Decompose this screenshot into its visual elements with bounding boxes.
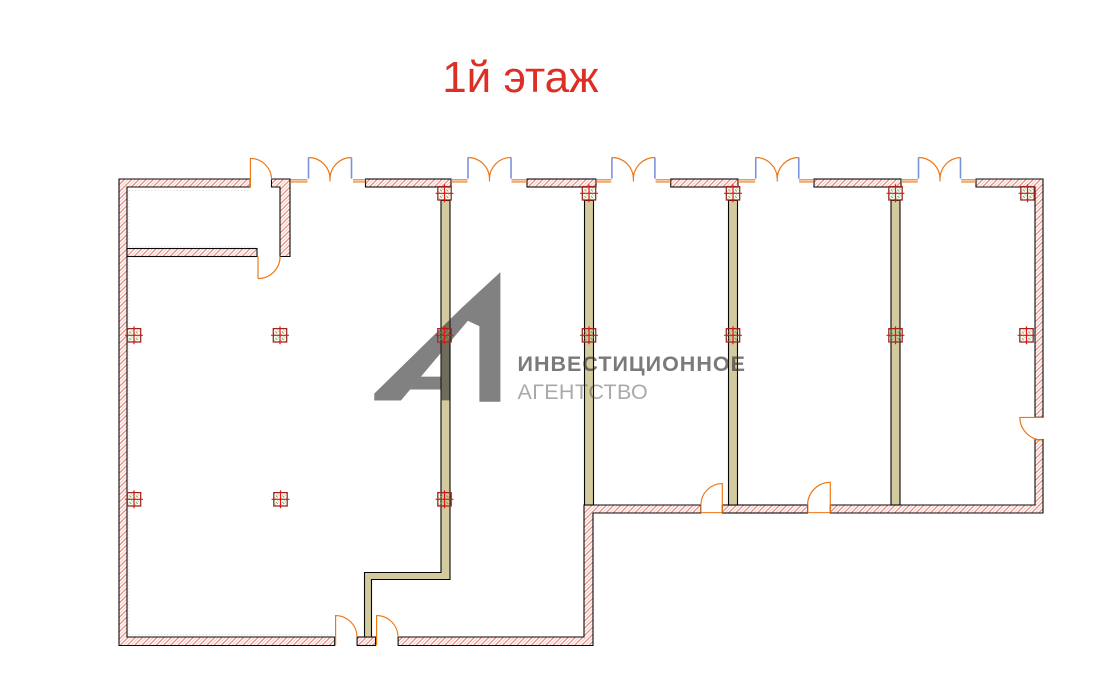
svg-text:1й этаж: 1й этаж: [442, 53, 599, 102]
svg-text:АГЕНТСТВО: АГЕНТСТВО: [518, 380, 649, 404]
svg-text:ИНВЕСТИЦИОННОЕ: ИНВЕСТИЦИОННОЕ: [518, 352, 746, 376]
